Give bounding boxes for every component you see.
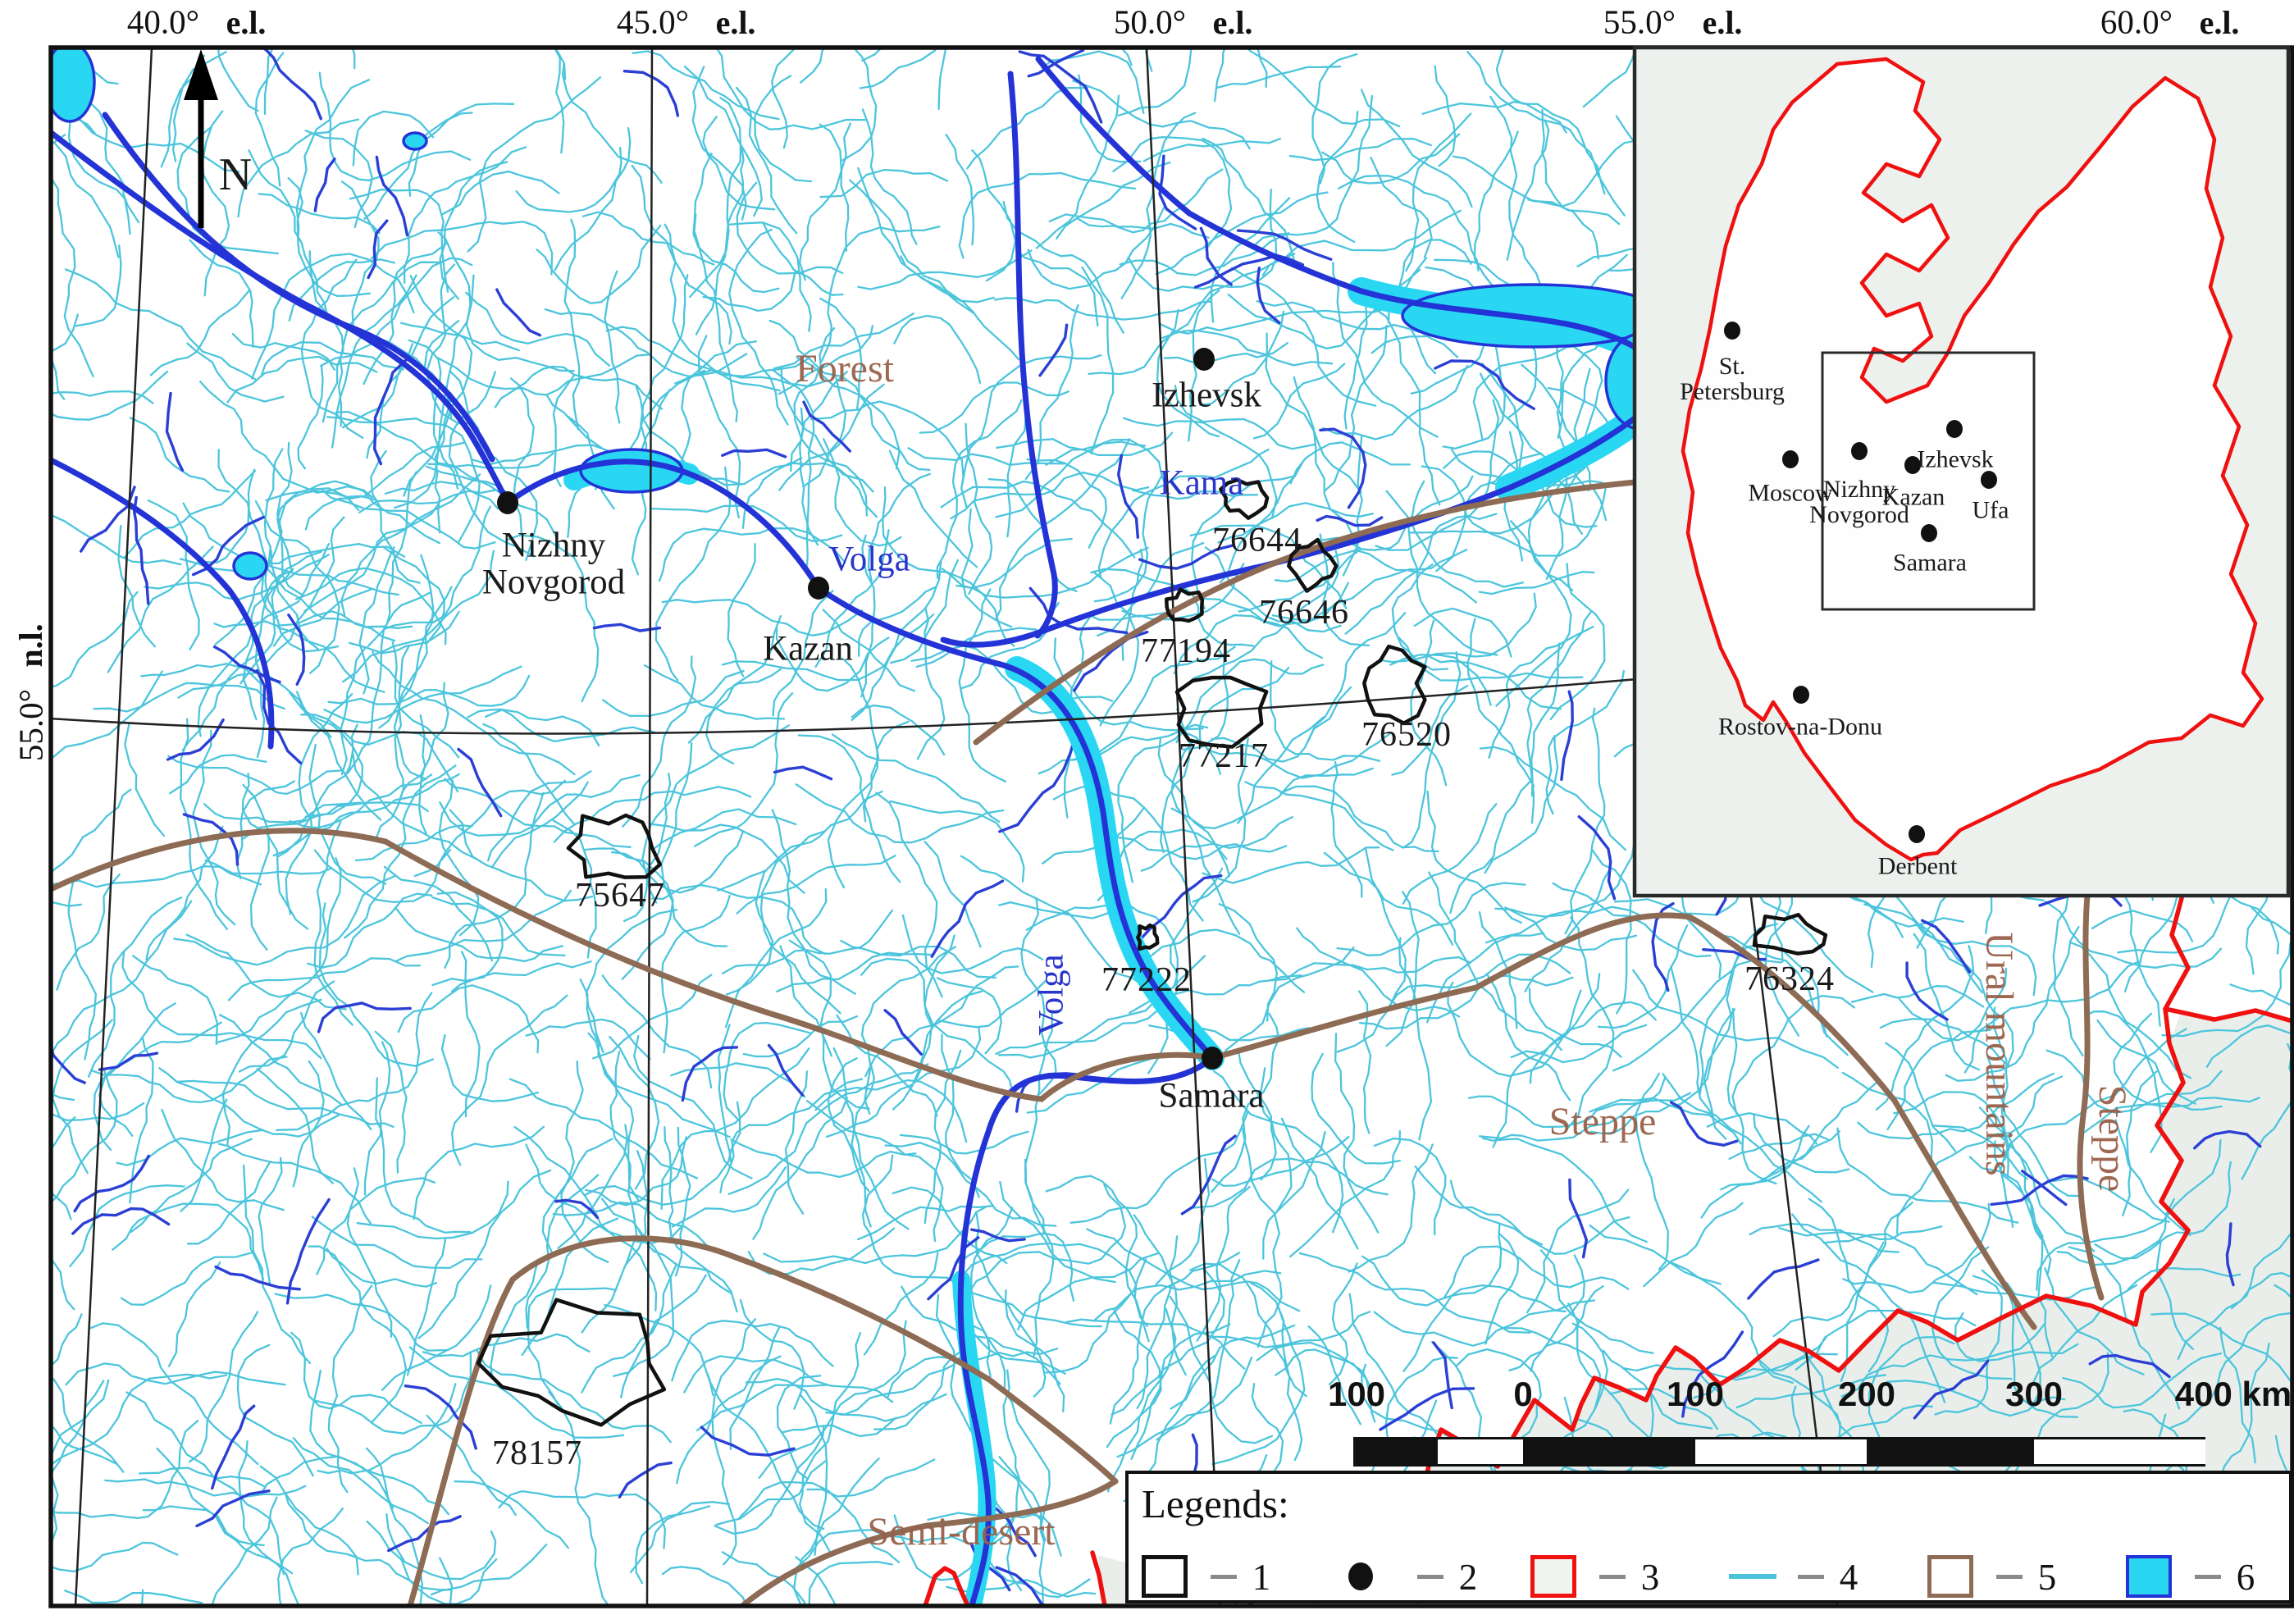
inset-dot-St. Petersburg <box>1724 322 1740 340</box>
legend-dash-6 <box>2195 1575 2221 1579</box>
inset-dot-Derbent <box>1909 825 1925 843</box>
inset-dot-Samara <box>1921 524 1937 542</box>
scalebar-segment-1 <box>1438 1439 1523 1464</box>
legend-symbol-river-line-icon <box>1729 1574 1776 1579</box>
inset-dot-Izhevsk <box>1946 420 1963 438</box>
legend-number-6: 6 <box>2237 1556 2255 1599</box>
scalebar-segment-3 <box>1695 1439 1867 1464</box>
inset-dot-Rostov-na-Donu <box>1793 686 1809 704</box>
legend-dash-2 <box>1417 1575 1443 1579</box>
legend: Legends: 123456 <box>1125 1471 2292 1603</box>
legend-dash-3 <box>1599 1575 1626 1579</box>
scalebar-segment-4 <box>1867 1439 2034 1464</box>
inset-dot-Nizhny Novgorod <box>1851 442 1868 460</box>
city-dot-Nizhny Novgorod <box>497 491 518 514</box>
legend-title: Legends: <box>1142 1480 1289 1527</box>
inset-map <box>1635 48 2288 896</box>
legend-symbol-water-body-icon <box>2126 1555 2172 1598</box>
city-dot-Izhevsk <box>1193 348 1215 371</box>
legend-symbol-state-border-icon <box>1530 1555 1576 1598</box>
legend-dash-5 <box>1996 1575 2023 1579</box>
legend-symbol-city-dot-icon <box>1348 1562 1373 1590</box>
legend-number-1: 1 <box>1252 1556 1271 1599</box>
legend-number-5: 5 <box>2038 1556 2057 1599</box>
legend-number-4: 4 <box>1840 1556 1858 1599</box>
legend-dash-1 <box>1211 1575 1237 1579</box>
map-canvas <box>0 0 2294 1624</box>
city-dot-Kazan <box>808 577 829 600</box>
scalebar-segment-0 <box>1353 1439 1438 1464</box>
legend-number-2: 2 <box>1459 1556 1478 1599</box>
city-dot-Samara <box>1202 1047 1223 1070</box>
inset-dot-Moscow <box>1782 450 1799 468</box>
legend-dash-4 <box>1798 1575 1824 1579</box>
legend-number-3: 3 <box>1641 1556 1660 1599</box>
scalebar-segment-2 <box>1523 1439 1695 1464</box>
inset-dot-Kazan <box>1904 456 1921 474</box>
legend-symbol-zone-border-icon <box>1927 1555 1973 1598</box>
scalebar-segment-5 <box>2034 1439 2205 1464</box>
map-figure: 7664476646771947721776520756477722276324… <box>0 0 2294 1624</box>
legend-symbol-watershed-outline-icon <box>1142 1555 1188 1598</box>
inset-dot-Ufa <box>1981 471 1997 489</box>
